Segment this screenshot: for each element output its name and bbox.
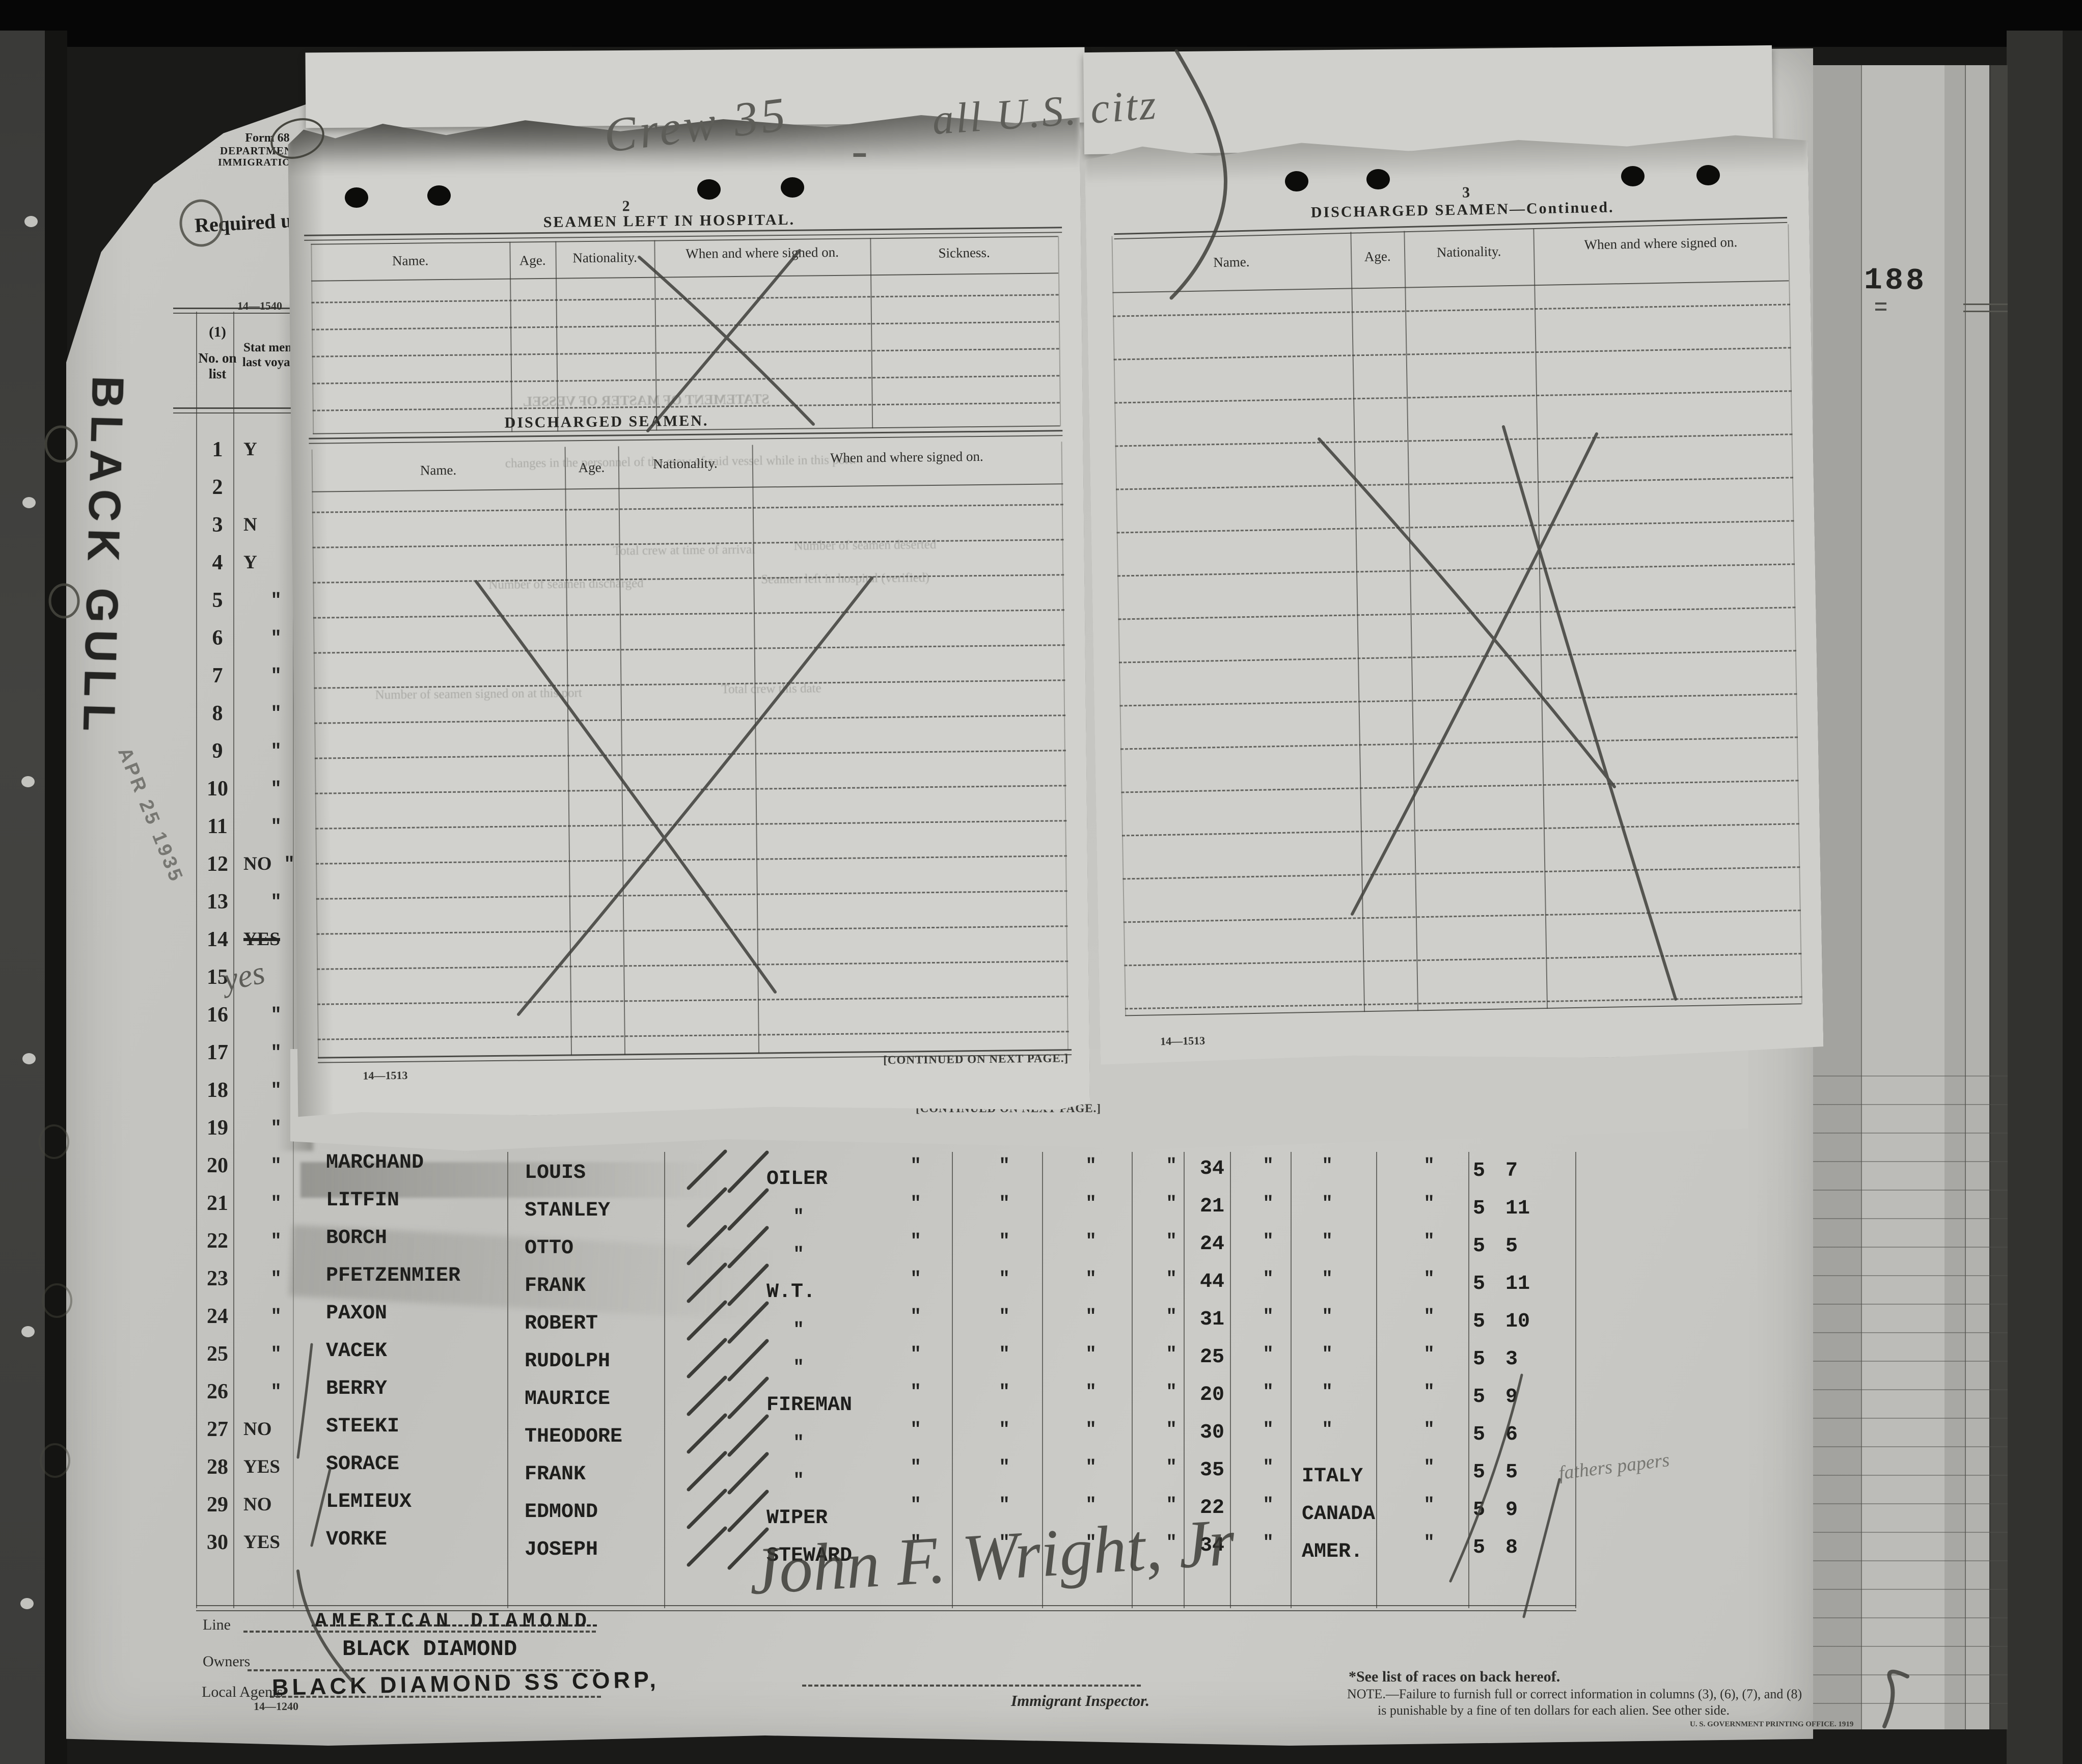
ditto-mark: " xyxy=(1419,1495,1439,1515)
status-ditto: " xyxy=(266,1118,286,1139)
given-name: EDMOND xyxy=(525,1501,598,1524)
blank-row xyxy=(1114,390,1792,403)
row-number: 7 xyxy=(200,664,235,688)
ditto-mark: " xyxy=(1419,1193,1439,1214)
surname: PFETZENMIER xyxy=(326,1264,460,1287)
row-number: 6 xyxy=(200,626,235,650)
row-number: 9 xyxy=(200,739,235,763)
height: 5 3 xyxy=(1473,1348,1518,1371)
row-number: 11 xyxy=(200,814,235,839)
status-value: NO xyxy=(243,1418,272,1440)
height: 5 6 xyxy=(1473,1423,1518,1446)
blank-row xyxy=(1119,650,1796,663)
ditto-mark: " xyxy=(1419,1419,1439,1440)
age: 34 xyxy=(1192,1534,1232,1557)
surname: PAXON xyxy=(326,1302,387,1325)
crew-row: 28YESSORACEFRANK"""""35"ITALY"5 5 xyxy=(0,1453,1630,1491)
crew-row: 22"BORCHOTTO"""""24"""5 5 xyxy=(0,1227,1630,1264)
nationality-ditto: " xyxy=(1317,1419,1337,1440)
surname: VACEK xyxy=(326,1340,387,1363)
ditto-mark: " xyxy=(1258,1344,1278,1365)
blank-row xyxy=(317,925,1068,934)
nationality: CANADA xyxy=(1302,1503,1375,1526)
age: 21 xyxy=(1192,1195,1232,1218)
ditto-mark: " xyxy=(1419,1231,1439,1252)
rating: W.T. xyxy=(766,1281,815,1304)
gpo-imprint: U. S. GOVERNMENT PRINTING OFFICE. 1919 xyxy=(1690,1720,1853,1729)
row-number: 2 xyxy=(200,475,235,500)
scanned-document-photo: 188 Form 68 DEPARTMENT OF LABOR IMMIGRAT… xyxy=(0,0,2082,1764)
blank-row xyxy=(315,750,1066,759)
blank-row xyxy=(1117,520,1794,533)
rating-ditto: " xyxy=(788,1432,809,1453)
table-line xyxy=(618,446,626,1055)
blank-row xyxy=(1115,433,1793,447)
age: 34 xyxy=(1192,1157,1232,1180)
ditto-mark: " xyxy=(1081,1495,1101,1515)
hospital-title: SEAMEN LEFT IN HOSPITAL. xyxy=(511,211,827,231)
col-name: Name. xyxy=(311,252,510,270)
blank-row xyxy=(1120,736,1798,750)
table-line xyxy=(1125,1003,1801,1016)
crew-row: 23"PFETZENMIERFRANKW.T.""""44"""5 11 xyxy=(0,1264,1630,1302)
row-number: 23 xyxy=(200,1266,235,1291)
status-ditto: " xyxy=(266,1231,286,1252)
blank-row xyxy=(1120,693,1797,706)
ditto-mark: " xyxy=(1081,1193,1101,1214)
note-races: *See list of races on back hereof. xyxy=(1349,1668,1560,1686)
blank-row xyxy=(312,375,1059,384)
ditto-mark: " xyxy=(906,1344,926,1365)
ditto-mark: " xyxy=(906,1495,926,1515)
status-ditto: " xyxy=(266,1080,286,1101)
status-value: NO xyxy=(243,853,272,875)
row-number: 30 xyxy=(200,1530,235,1555)
blank-row xyxy=(312,321,1059,330)
ditto-mark: " xyxy=(994,1269,1015,1289)
height: 5 10 xyxy=(1473,1310,1530,1333)
row-number: 29 xyxy=(200,1493,235,1517)
blank-row xyxy=(312,348,1059,357)
ditto-mark: " xyxy=(1161,1269,1182,1289)
table-line xyxy=(752,445,760,1054)
no-on-list-header: No. on list xyxy=(198,350,237,382)
given-name: RUDOLPH xyxy=(525,1350,610,1373)
ditto-mark: " xyxy=(1081,1457,1101,1478)
ditto-mark: " xyxy=(1258,1193,1278,1214)
height: 5 7 xyxy=(1473,1160,1518,1182)
col-signed: When and where signed on. xyxy=(654,244,870,262)
ditto-mark: " xyxy=(994,1193,1015,1214)
ditto-mark: " xyxy=(1081,1306,1101,1327)
blank-row xyxy=(314,714,1065,724)
crew-row: 20"MARCHANDLOUISOILER""""34"""5 7 xyxy=(0,1151,1630,1189)
blank-row xyxy=(318,1031,1069,1040)
row-number: 26 xyxy=(200,1380,235,1404)
given-name: MAURICE xyxy=(525,1388,610,1411)
ditto-mark: " xyxy=(1161,1495,1182,1515)
ditto-mark: " xyxy=(906,1231,926,1252)
status-ditto: " xyxy=(266,892,286,913)
sheet-edge-band xyxy=(306,47,1085,128)
row-number: 21 xyxy=(200,1191,235,1216)
given-name: STANLEY xyxy=(525,1199,610,1222)
inspector-label: Immigrant Inspector. xyxy=(1011,1692,1149,1710)
row-number: 25 xyxy=(200,1342,235,1366)
blank-row xyxy=(1121,780,1799,793)
rating: STEWARD xyxy=(766,1545,852,1567)
row-number: 18 xyxy=(200,1078,235,1102)
blank-row xyxy=(312,294,1059,303)
table-bottom-rule xyxy=(196,1605,1576,1606)
blank-row xyxy=(1124,953,1801,966)
row-number: 1 xyxy=(200,437,235,462)
page-number: 3 xyxy=(1462,184,1470,201)
form-number: 14—1513 xyxy=(363,1069,407,1083)
col-age: Age. xyxy=(510,253,556,269)
nationality-ditto: " xyxy=(1317,1269,1337,1289)
ditto-mark: " xyxy=(1081,1231,1101,1252)
blank-row xyxy=(1117,563,1795,576)
ditto-mark: " xyxy=(994,1382,1015,1402)
strike-line xyxy=(312,1624,597,1627)
ditto-mark: " xyxy=(1161,1419,1182,1440)
status-ditto: " xyxy=(266,1382,286,1402)
crew-row: 24"PAXONROBERT"""""31"""5 10 xyxy=(0,1302,1630,1340)
owners-value: BLACK DIAMOND xyxy=(342,1637,517,1662)
rating-ditto: " xyxy=(788,1206,809,1227)
given-name: OTTO xyxy=(525,1237,573,1260)
nationality: AMER. xyxy=(1302,1540,1363,1563)
ditto-mark: " xyxy=(906,1155,926,1176)
surname: LITFIN xyxy=(326,1189,399,1212)
nationality-ditto: " xyxy=(1317,1231,1337,1252)
owners-label: Owners xyxy=(203,1653,250,1670)
height: 5 11 xyxy=(1473,1197,1530,1220)
blank-row xyxy=(313,574,1064,583)
row-number: 16 xyxy=(200,1003,235,1027)
status-ditto: " xyxy=(266,703,286,724)
row-number: 14 xyxy=(200,927,235,952)
ditto-mark: " xyxy=(1161,1306,1182,1327)
blank-row xyxy=(1113,304,1790,317)
status-ditto: " xyxy=(266,628,286,649)
surname: LEMIEUX xyxy=(326,1491,412,1513)
ditto-mark: " xyxy=(1258,1419,1278,1440)
ditto-mark: " xyxy=(1258,1306,1278,1327)
height: 5 9 xyxy=(1473,1499,1518,1522)
nationality-ditto: " xyxy=(1317,1344,1337,1365)
height: 5 5 xyxy=(1473,1461,1518,1484)
blank-row xyxy=(316,890,1067,899)
rating-ditto: " xyxy=(788,1470,809,1491)
blank-row xyxy=(314,679,1065,688)
blank-row xyxy=(1118,607,1796,620)
row-number: 28 xyxy=(200,1455,235,1479)
row-number: 13 xyxy=(200,890,235,914)
ditto-mark: " xyxy=(906,1419,926,1440)
blank-row xyxy=(1122,823,1799,836)
ditto-mark: " xyxy=(1161,1532,1182,1553)
row-number: 24 xyxy=(200,1304,235,1329)
age: 35 xyxy=(1192,1459,1232,1482)
ditto-mark: " xyxy=(1081,1532,1101,1553)
form-number-bottom: 14—1240 xyxy=(254,1700,298,1713)
status-ditto: " xyxy=(266,666,286,686)
table-line xyxy=(870,238,873,428)
ditto-mark: " xyxy=(906,1457,926,1478)
bleed-text: Total crew at time of arrival xyxy=(613,543,756,559)
ditto-mark: " xyxy=(1419,1306,1439,1327)
table-line xyxy=(312,483,1063,492)
ditto-mark: " xyxy=(1258,1457,1278,1478)
line-rule xyxy=(243,1631,596,1633)
blank-row xyxy=(314,644,1065,653)
status-value: NO xyxy=(243,1494,272,1515)
ditto-mark: " xyxy=(1081,1155,1101,1176)
row-number: 19 xyxy=(200,1116,235,1140)
given-name: FRANK xyxy=(525,1463,586,1486)
note-line2: is punishable by a fine of ten dollars f… xyxy=(1378,1703,1730,1718)
surname: MARCHAND xyxy=(326,1151,424,1174)
given-name: FRANK xyxy=(525,1275,586,1298)
col-nationality: Nationality. xyxy=(1404,243,1534,261)
form-number: 14—1513 xyxy=(1160,1034,1205,1049)
age: 31 xyxy=(1192,1308,1232,1331)
col-signed: When and where signed on. xyxy=(752,448,1061,466)
bleed-text: Number of seamen signed on at this port xyxy=(375,686,582,702)
ditto-mark: " xyxy=(906,1532,926,1553)
ditto-mark: " xyxy=(1258,1269,1278,1289)
inspector-rule xyxy=(802,1685,1141,1687)
blank-row xyxy=(1125,996,1802,1009)
row-number: 12 xyxy=(200,852,235,876)
col-name: Name. xyxy=(312,461,565,480)
ditto-mark: " xyxy=(906,1306,926,1327)
ditto-mark: " xyxy=(906,1382,926,1402)
age: 25 xyxy=(1192,1346,1232,1369)
surname: BORCH xyxy=(326,1227,387,1250)
crew-row: 30YESVORKEJOSEPHSTEWARD""""34"AMER."5 8 xyxy=(0,1528,1630,1566)
row-number: 3 xyxy=(200,513,235,537)
ditto-mark: " xyxy=(1419,1344,1439,1365)
blank-row xyxy=(1124,909,1801,923)
ditto-mark: " xyxy=(1258,1495,1278,1515)
given-name: THEODORE xyxy=(525,1425,622,1448)
col-sickness: Sickness. xyxy=(870,244,1058,262)
table-line xyxy=(1111,236,1126,1016)
status-ditto: " xyxy=(266,779,286,800)
column-1-number: (1) xyxy=(200,324,235,341)
ditto-mark: " xyxy=(1161,1457,1182,1478)
row-number: 20 xyxy=(200,1153,235,1178)
surname: BERRY xyxy=(326,1377,387,1400)
discharged-cont-title: DISCHARGED SEAMEN—Continued. xyxy=(1299,199,1625,222)
col-name: Name. xyxy=(1112,252,1351,272)
status-ditto: " xyxy=(266,741,286,762)
ditto-mark: " xyxy=(994,1495,1015,1515)
height: 5 5 xyxy=(1473,1235,1518,1258)
bleed-text: STATEMENT OF MASTER OF VESSEL xyxy=(504,391,769,409)
age: 30 xyxy=(1192,1421,1232,1444)
status-value: YES xyxy=(243,928,280,950)
age: 20 xyxy=(1192,1384,1232,1407)
ditto-mark: " xyxy=(1258,1532,1278,1553)
row-number: 4 xyxy=(200,550,235,575)
ditto-mark: " xyxy=(1161,1193,1182,1214)
given-name: LOUIS xyxy=(525,1162,586,1184)
table-line xyxy=(1350,232,1365,1012)
table-line xyxy=(1058,236,1061,426)
ditto-mark: " xyxy=(906,1269,926,1289)
row-number: 22 xyxy=(200,1229,235,1253)
ditto-mark: " xyxy=(994,1306,1015,1327)
bleed-text: Seamen left in hospital (verified) xyxy=(761,571,929,587)
status-value: YES xyxy=(243,1531,280,1553)
ditto-mark: " xyxy=(906,1193,926,1214)
ditto-mark: " xyxy=(1419,1155,1439,1176)
age: 24 xyxy=(1192,1233,1232,1256)
table-line xyxy=(311,272,1058,281)
table-line xyxy=(565,447,572,1056)
ditto-mark: " xyxy=(1161,1155,1182,1176)
ditto-mark: " xyxy=(1419,1532,1439,1553)
blank-row xyxy=(315,820,1066,829)
ditto-mark: " xyxy=(994,1155,1015,1176)
ditto-mark: " xyxy=(1161,1344,1182,1365)
blank-row xyxy=(1116,477,1793,490)
row-number: 8 xyxy=(200,701,235,726)
crew-row: 26"BERRYMAURICEFIREMAN""""20"""5 9 xyxy=(0,1377,1630,1415)
given-name: ROBERT xyxy=(525,1312,598,1335)
ditto-mark: " xyxy=(1081,1382,1101,1402)
status-ditto: " xyxy=(266,1193,286,1214)
table-line xyxy=(1061,442,1069,1050)
agents-label: Local Agents xyxy=(202,1684,283,1701)
status-ditto: " xyxy=(266,1344,286,1365)
surname: STEEKI xyxy=(326,1415,399,1438)
row-number: 17 xyxy=(200,1040,235,1065)
ditto-mark: " xyxy=(994,1532,1015,1553)
line-label: Line xyxy=(203,1616,231,1634)
status-value: N xyxy=(243,514,257,536)
ditto-mark: " xyxy=(994,1231,1015,1252)
status-value: Y xyxy=(243,552,257,573)
ditto-mark: " xyxy=(994,1344,1015,1365)
blank-row xyxy=(313,609,1064,618)
rating: FIREMAN xyxy=(766,1394,852,1417)
status-value: Y xyxy=(243,438,257,460)
nationality-ditto: " xyxy=(1317,1193,1337,1214)
ditto-mark: " xyxy=(994,1457,1015,1478)
row-number: 27 xyxy=(200,1417,235,1442)
table-line xyxy=(1112,280,1789,293)
blank-row xyxy=(317,996,1069,1005)
note-line1: NOTE.—Failure to furnish full or correct… xyxy=(1347,1687,1802,1702)
discharged-title: DISCHARGED SEAMEN. xyxy=(454,412,759,432)
status-ditto: " xyxy=(266,1042,286,1063)
ditto-mark: " xyxy=(1419,1382,1439,1402)
ditto-mark: " xyxy=(1258,1155,1278,1176)
status-ditto: " xyxy=(266,1005,286,1026)
line-value: AMERICAN DIAMOND xyxy=(315,1610,592,1633)
ditto-mark: " xyxy=(1161,1231,1182,1252)
height: 5 9 xyxy=(1473,1386,1518,1409)
status-ditto: " xyxy=(266,590,286,611)
blank-row xyxy=(315,785,1066,794)
col-nationality: Nationality. xyxy=(556,250,654,266)
blank-row xyxy=(316,855,1067,864)
sheet-edge-band xyxy=(1083,45,1773,154)
nationality: ITALY xyxy=(1302,1465,1363,1488)
height: 5 8 xyxy=(1473,1536,1518,1559)
crew-row: 21"LITFINSTANLEY"""""21"""5 11 xyxy=(0,1189,1630,1227)
blank-row xyxy=(317,960,1068,970)
blank-row xyxy=(1114,347,1791,360)
discharged-continued-page: 3 DISCHARGED SEAMEN—Continued. Name. Age… xyxy=(1084,131,1823,1067)
rating: OILER xyxy=(766,1168,828,1191)
blank-row xyxy=(1122,866,1800,879)
ditto-mark: " xyxy=(1258,1382,1278,1402)
ditto-mark: " xyxy=(1419,1269,1439,1289)
rating: WIPER xyxy=(766,1507,828,1530)
status-ditto: " xyxy=(266,1306,286,1327)
given-name: JOSEPH xyxy=(525,1538,598,1561)
nationality-ditto: " xyxy=(1317,1382,1337,1402)
col-signed: When and where signed on. xyxy=(1533,233,1788,254)
ditto-mark: " xyxy=(1161,1382,1182,1402)
ditto-mark: " xyxy=(1081,1269,1101,1289)
col-age: Age. xyxy=(565,459,618,476)
blank-row xyxy=(312,504,1063,513)
col-nationality: Nationality. xyxy=(618,455,752,473)
status-ditto: " xyxy=(266,1269,286,1289)
agents-rule xyxy=(270,1696,601,1698)
nationality-ditto: " xyxy=(1317,1306,1337,1327)
surname: VORKE xyxy=(326,1528,387,1551)
ditto-mark: " xyxy=(994,1419,1015,1440)
table-line xyxy=(1404,231,1418,1011)
crew-row: 25"VACEKRUDOLPH"""""25"""5 3 xyxy=(0,1340,1630,1377)
age: 22 xyxy=(1192,1497,1232,1520)
status-value: YES xyxy=(243,1456,280,1478)
crew-row: 29NOLEMIEUXEDMONDWIPER""""22"CANADA"5 9 xyxy=(0,1491,1630,1528)
rating-ditto: " xyxy=(788,1244,809,1265)
nationality-ditto: " xyxy=(1317,1155,1337,1176)
rating-ditto: " xyxy=(788,1319,809,1340)
row-number: 5 xyxy=(200,588,235,613)
ditto-mark: " xyxy=(1081,1344,1101,1365)
crew-row: 27NOSTEEKITHEODORE"""""30"""5 6 xyxy=(0,1415,1630,1453)
row-number: 10 xyxy=(200,777,235,801)
ditto-mark: " xyxy=(1419,1457,1439,1478)
ditto-mark: " xyxy=(1081,1419,1101,1440)
table-line xyxy=(1788,224,1802,1004)
status-ditto: " xyxy=(266,1155,286,1176)
height: 5 11 xyxy=(1473,1273,1530,1296)
col-age: Age. xyxy=(1351,249,1405,265)
ditto-mark: " xyxy=(1258,1231,1278,1252)
required-text: Required u xyxy=(194,208,293,237)
surname: SORACE xyxy=(326,1453,399,1476)
continued-note: [CONTINUED ON NEXT PAGE.] xyxy=(883,1052,1069,1067)
age: 44 xyxy=(1192,1271,1232,1293)
status-ditto: " xyxy=(266,816,286,837)
table-line xyxy=(1533,229,1548,1009)
hospital-discharged-page: 2 SEAMEN LEFT IN HOSPITAL. Name. Age. Na… xyxy=(288,111,1090,1118)
rating-ditto: " xyxy=(788,1357,809,1378)
